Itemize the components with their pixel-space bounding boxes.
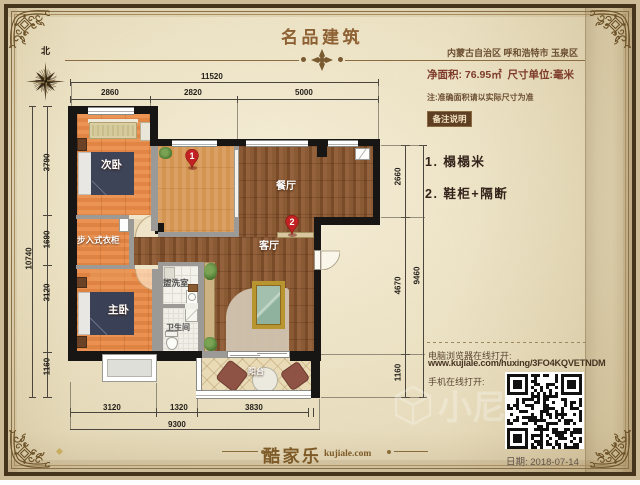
- svg-text:小尼: 小尼: [438, 389, 506, 427]
- svg-text:2: 2: [289, 217, 294, 227]
- svg-text:1: 1: [189, 151, 194, 161]
